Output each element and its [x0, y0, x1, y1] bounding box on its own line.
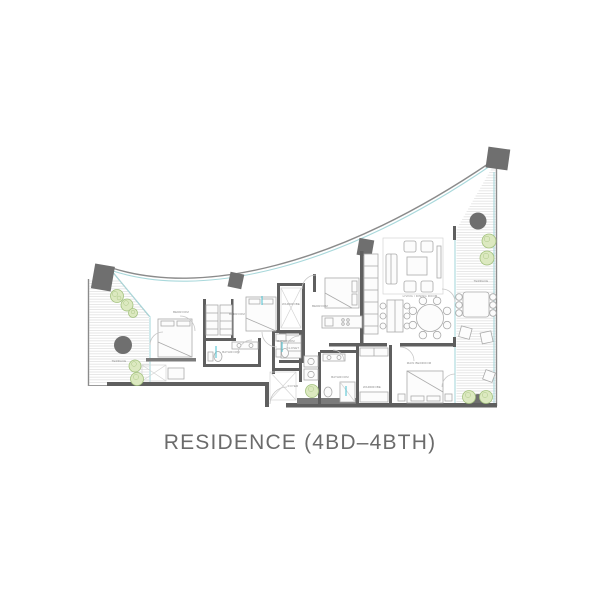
tree-icon	[480, 251, 494, 265]
room-label-terrace-left: TERRACE	[112, 359, 127, 363]
tree-icon	[111, 290, 124, 303]
tree-icon	[131, 373, 144, 386]
room-label-living-dining: LIVING / DINING ROOM	[403, 294, 438, 298]
dining-chair-icon	[433, 297, 441, 305]
terrace-right-decking	[457, 170, 496, 401]
wardrobe-x-icon	[281, 288, 301, 328]
column-icon	[486, 147, 511, 171]
room-label-foyer: FOYER	[288, 384, 299, 388]
wardrobe-x-icon	[142, 365, 166, 381]
washer-icon	[304, 356, 318, 367]
dining-chair-icon	[433, 331, 441, 339]
dining-chair-icon	[443, 321, 451, 329]
door-arc-icon	[270, 387, 287, 404]
outdoor-table-icon	[456, 292, 497, 317]
toilet-icon	[276, 349, 281, 357]
column-icon	[470, 213, 487, 230]
sofa-icon	[386, 254, 397, 284]
kitchen-counter	[322, 316, 362, 328]
armchair-icon	[404, 241, 416, 252]
plan-title: RESIDENCE (4BD–4BTH)	[164, 431, 437, 454]
column-icon	[91, 263, 115, 291]
room-label-bedroom-2: BEDROOM	[229, 312, 245, 316]
dining-chair-icon	[419, 297, 427, 305]
toilet-icon	[208, 352, 213, 361]
armchair-icon	[404, 281, 416, 292]
room-label-bathroom-2: BATHROOM	[331, 375, 349, 379]
media-console	[146, 358, 196, 362]
room-label-bedroom-1: BEDROOM	[173, 310, 189, 314]
toilet-icon	[324, 387, 332, 397]
room-label-terrace-right: TERRACE	[474, 279, 489, 283]
room-label-powder: BATHROOM	[277, 339, 295, 343]
lounge-chair-icon	[480, 331, 493, 344]
floor-plan-page: TERRACE BEDROOM BEDROOM BEDROOM WARDROBE…	[0, 0, 600, 600]
sink-icon	[232, 342, 258, 349]
bed-icon	[158, 319, 192, 357]
tv-console	[437, 246, 441, 278]
door-arc-icon	[442, 374, 455, 387]
coffee-table-icon	[407, 257, 427, 275]
tree-icon	[129, 309, 138, 318]
bed-icon	[325, 278, 359, 308]
lounge-chair-icon	[459, 326, 472, 339]
room-label-wardrobe: WARDROBE	[363, 385, 381, 389]
floor-plan-drawing: TERRACE BEDROOM BEDROOM BEDROOM WARDROBE…	[0, 0, 600, 600]
door-arc-icon	[400, 347, 414, 361]
dining-chair-icon	[419, 331, 427, 339]
dining-table-icon	[409, 297, 451, 339]
tree-icon	[480, 391, 493, 404]
bed-icon	[246, 297, 276, 331]
sink-icon	[323, 354, 345, 361]
wardrobe-shelving	[360, 348, 388, 402]
room-label-closet: CLOSET	[287, 346, 299, 350]
column-icon	[114, 336, 132, 354]
room-label-bedroom-3: BEDROOM	[312, 304, 328, 308]
dining-chair-icon	[409, 321, 417, 329]
laundry	[304, 356, 318, 380]
tree-icon	[129, 360, 141, 372]
tree-icon	[482, 234, 496, 248]
armchair-icon	[421, 241, 433, 252]
closet-shelving	[206, 305, 232, 335]
room-label-main-bedroom: MAIN BEDROOM	[407, 361, 432, 365]
room-label-walk-in: WARDROBE	[282, 302, 300, 306]
dresser	[168, 368, 184, 379]
dining-chair-icon	[443, 307, 451, 315]
kitchen-island-icon	[380, 300, 410, 332]
dining-chair-icon	[409, 307, 417, 315]
kitchen-cabinets	[364, 254, 378, 334]
armchair-icon	[421, 281, 433, 292]
washer-icon	[304, 369, 318, 380]
room-label-bathroom-1: BATHROOM	[222, 350, 240, 354]
door-arc-icon	[442, 289, 455, 302]
bed-icon	[398, 371, 452, 403]
tree-icon	[306, 385, 319, 398]
tree-icon	[463, 391, 476, 404]
